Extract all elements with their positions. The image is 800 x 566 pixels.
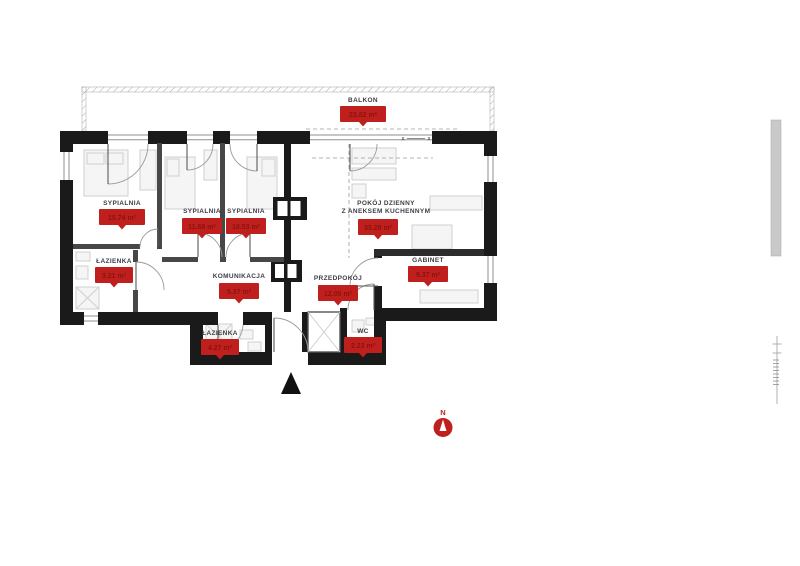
room-label-komunikacja: KOMUNIKACJA	[213, 273, 266, 280]
room-label-gabinet: GABINET	[412, 257, 444, 264]
window-top-2	[187, 131, 213, 144]
wardrobe-1	[140, 150, 156, 190]
area-badge-balkon: 23.82 m²	[340, 106, 386, 127]
room-sypialnia-1: SYPIALNIA 15.74 m²	[99, 200, 145, 230]
room-gabinet: GABINET 9.37 m²	[408, 257, 448, 287]
room-label-sypialnia-3: SYPIALNIA	[227, 208, 265, 215]
window-top-1	[108, 131, 148, 144]
room-label-przedpokoj: PRZEDPOKÓJ	[314, 273, 362, 282]
svg-text:23.82 m²: 23.82 m²	[349, 112, 378, 119]
glazing-mark-left: x	[402, 137, 405, 143]
balcony-railing	[82, 87, 494, 131]
area-badge-sypialnia-2: 11.68 m²	[182, 218, 222, 239]
room-label-sypialnia-1: SYPIALNIA	[103, 200, 141, 207]
shower-1	[76, 287, 99, 309]
room-sypialnia-2: SYPIALNIA 11.68 m²	[182, 208, 222, 239]
window-top-3	[230, 131, 257, 144]
room-label-pokoj-line1: POKÓJ DZIENNY	[357, 198, 415, 207]
room-lazienka-1: ŁAZIENKA 3.21 m²	[95, 258, 133, 288]
room-sypialnia-3: SYPIALNIA 10.53 m²	[226, 208, 266, 239]
room-przedpokoj: PRZEDPOKÓJ 12.05 m²	[314, 273, 362, 306]
svg-text:10.53 m²: 10.53 m²	[232, 224, 261, 231]
room-label-pokoj-line2: Z ANEKSEM KUCHENNYM	[342, 208, 431, 215]
neighbor-building-bar	[771, 120, 781, 256]
room-label-lazienka-2: ŁAZIENKA	[202, 330, 238, 337]
area-badge-przedpokoj: 12.05 m²	[318, 285, 358, 306]
sink-1	[76, 252, 90, 261]
window-right-2	[484, 256, 497, 283]
window-left	[60, 152, 73, 180]
window-glazing-living	[310, 131, 432, 144]
entrance-arrow	[281, 372, 301, 394]
area-badge-gabinet: 9.37 m²	[408, 266, 448, 287]
floorplan-image: x x BALKON 23.82 m² SYPIALNIA 15.74 m²	[0, 0, 800, 566]
svg-text:9.37 m²: 9.37 m²	[416, 272, 441, 279]
toilet-2	[248, 342, 261, 351]
svg-text:2.23 m²: 2.23 m²	[351, 343, 376, 350]
core-shaft-wall	[284, 143, 291, 312]
elevator-shaft	[308, 312, 340, 352]
glazing-mark-right: x	[428, 137, 431, 143]
desk-gabinet	[420, 290, 478, 303]
svg-text:4.27 m²: 4.27 m²	[208, 345, 233, 352]
svg-text:12.05 m²: 12.05 m²	[324, 291, 353, 298]
site-context	[771, 120, 782, 404]
toilet-1	[76, 266, 88, 279]
compass: N	[434, 408, 453, 437]
svg-text:3.21 m²: 3.21 m²	[102, 273, 127, 280]
svg-text:33.28 m²: 33.28 m²	[364, 225, 393, 232]
area-badge-sypialnia-3: 10.53 m²	[226, 218, 266, 239]
street-label-illegible	[773, 360, 779, 385]
room-label-sypialnia-2: SYPIALNIA	[183, 208, 221, 215]
svg-text:5.37 m²: 5.37 m²	[227, 289, 252, 296]
room-komunikacja: KOMUNIKACJA 5.37 m²	[213, 273, 266, 304]
area-badge-pokoj: 33.28 m²	[358, 219, 398, 240]
room-balkon: BALKON 23.82 m²	[340, 97, 386, 127]
room-label-wc: WC	[357, 328, 369, 335]
window-bottom-left	[84, 312, 98, 325]
window-right-1	[484, 156, 497, 182]
room-label-balkon: BALKON	[348, 97, 378, 104]
sofa	[430, 196, 482, 210]
compass-north-label: N	[440, 408, 445, 417]
room-label-lazienka-1: ŁAZIENKA	[96, 258, 132, 265]
svg-text:15.74 m²: 15.74 m²	[108, 215, 137, 222]
svg-text:11.68 m²: 11.68 m²	[188, 224, 216, 231]
floorplan-svg: x x BALKON 23.82 m² SYPIALNIA 15.74 m²	[0, 0, 800, 566]
dining-table	[412, 225, 452, 249]
sink-wc	[366, 318, 375, 325]
area-badge-komunikacja: 5.37 m²	[219, 283, 259, 304]
area-badge-lazienka-1: 3.21 m²	[95, 267, 133, 288]
area-badge-sypialnia-1: 15.74 m²	[99, 209, 145, 230]
fridge	[352, 184, 366, 198]
